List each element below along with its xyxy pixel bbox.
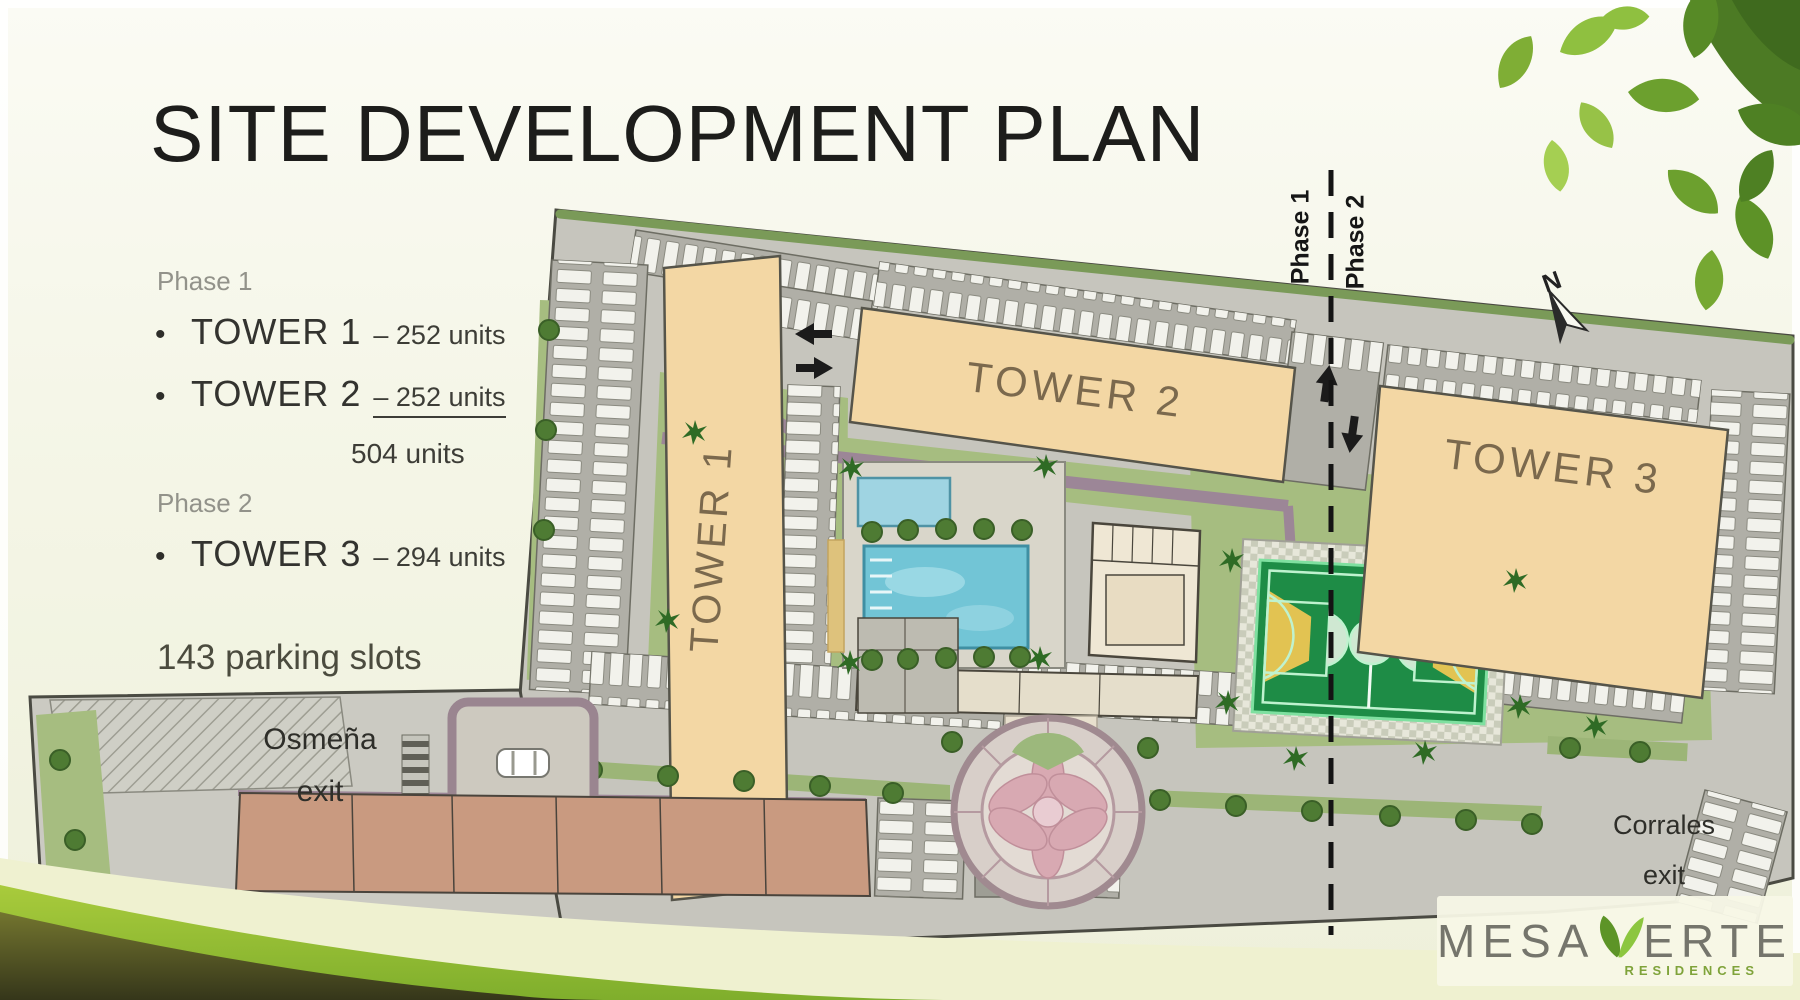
- phase2-divider-label: Phase 2: [1342, 195, 1371, 290]
- corrales-exit-line2: exit: [1588, 850, 1740, 900]
- corrales-exit-line1: Corrales: [1588, 800, 1740, 850]
- bullet-icon: •: [155, 380, 191, 414]
- phase1-subtotal: 504 units: [351, 438, 555, 470]
- tower2-name: TOWER 2: [191, 373, 361, 415]
- parking-count-note: 143 parking slots: [157, 638, 422, 678]
- osmena-exit-label: Osmeña exit: [238, 714, 402, 818]
- tower2-units: – 252 units: [373, 382, 505, 418]
- bullet-icon: •: [155, 540, 191, 574]
- brand-logo: MESA ERTE RESIDENCES: [1437, 896, 1793, 986]
- bullet-icon: •: [155, 318, 191, 352]
- legend-tower2-row: • TOWER 2 – 252 units: [155, 373, 555, 418]
- osmena-exit-line1: Osmeña: [238, 714, 402, 766]
- corrales-exit-label: Corrales exit: [1588, 800, 1740, 900]
- tower1-name: TOWER 1: [191, 311, 361, 353]
- crosswalk: [402, 735, 429, 803]
- phase2-heading: Phase 2: [157, 488, 555, 519]
- logo-subtitle: RESIDENCES: [1624, 963, 1759, 978]
- page-title: SITE DEVELOPMENT PLAN: [150, 88, 1205, 180]
- rotunda-plaza: [954, 718, 1142, 906]
- tower3-units: – 294 units: [373, 542, 505, 573]
- phase1-heading: Phase 1: [157, 266, 555, 297]
- logo-text-right: ERTE: [1643, 914, 1793, 968]
- legend-tower1-row: • TOWER 1 – 252 units: [155, 311, 555, 353]
- leaves-decor: [1483, 0, 1800, 313]
- legend-panel: Phase 1 • TOWER 1 – 252 units • TOWER 2 …: [155, 260, 555, 595]
- tower3-name: TOWER 3: [191, 533, 361, 575]
- car: [497, 749, 549, 777]
- leaf-v-icon: [1593, 906, 1647, 970]
- site-development-plan-slide: SITE DEVELOPMENT PLAN Phase 1 • TOWER 1 …: [0, 0, 1800, 1000]
- logo-text-left: MESA: [1437, 914, 1595, 968]
- tower-3-building: [1358, 386, 1728, 698]
- phase1-divider-label: Phase 1: [1287, 190, 1316, 285]
- osmena-exit-line2: exit: [238, 766, 402, 818]
- legend-tower3-row: • TOWER 3 – 294 units: [155, 533, 555, 575]
- tower1-units: – 252 units: [373, 320, 505, 351]
- kiddie-pool: [858, 478, 950, 526]
